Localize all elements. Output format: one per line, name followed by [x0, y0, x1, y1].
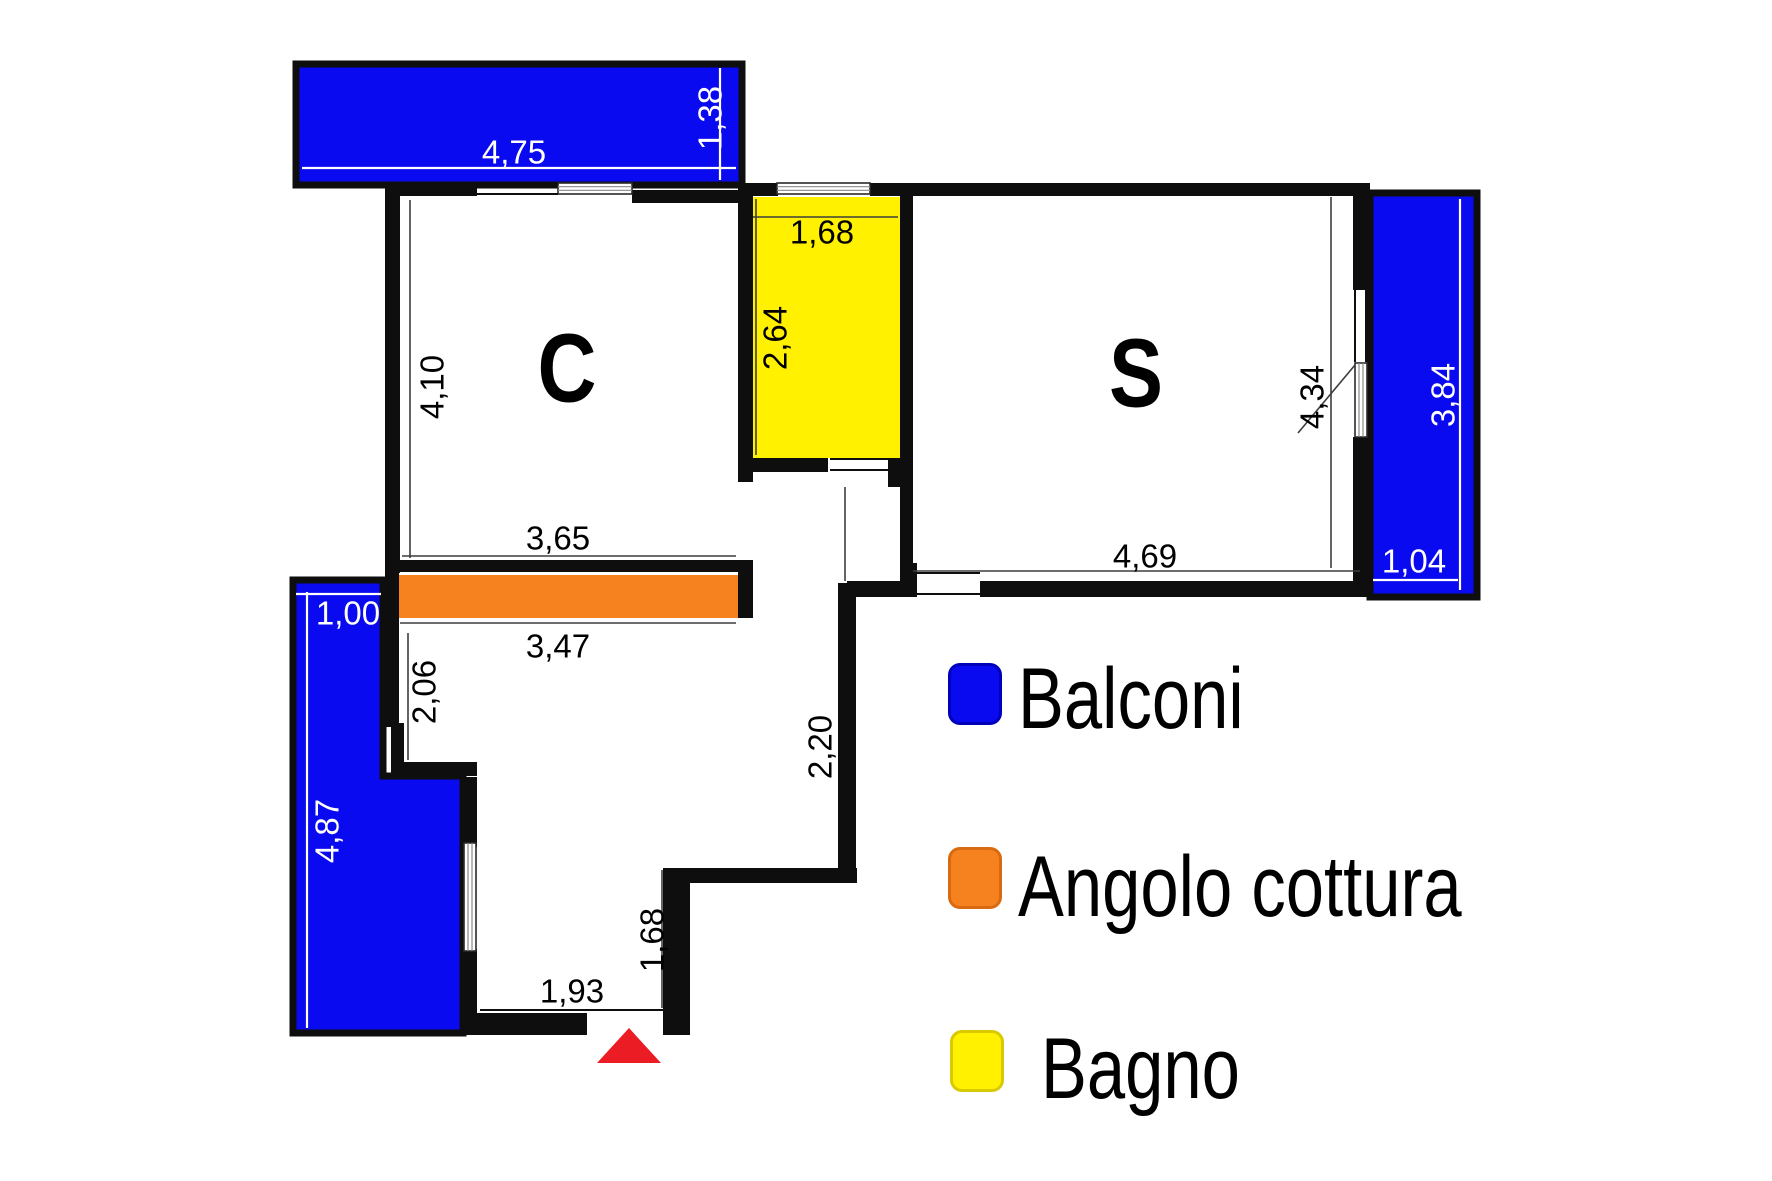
wall-segment	[738, 458, 828, 472]
wall-segment	[750, 183, 778, 196]
wall-segment	[385, 572, 399, 727]
dimension-label: 4,10	[414, 355, 451, 419]
legend-swatch-bagno	[950, 1030, 1004, 1092]
wall-segment	[632, 190, 750, 203]
legend-label-angolo-cottura: Angolo cottura	[1018, 844, 1462, 930]
dimension-label: 1,68	[634, 908, 671, 972]
room-s-label: S	[1109, 319, 1163, 428]
window-bagno-top	[777, 183, 870, 194]
wall-segment	[1353, 183, 1367, 290]
dimension-label: 1,00	[316, 595, 380, 632]
wall-segment	[738, 560, 753, 618]
dimension-label: 2,64	[757, 306, 794, 370]
wall-segment	[463, 777, 477, 847]
wall-segment	[463, 949, 477, 1015]
wall-segment	[882, 183, 1370, 196]
wall-segment	[847, 581, 917, 597]
dimension-label: 1,04	[1382, 543, 1446, 580]
dimension-label: 1,38	[692, 86, 729, 150]
floorplan-svg: 4,751,384,101,682,644,343,841,043,654,69…	[0, 0, 1772, 1181]
window-hall-left	[464, 843, 476, 951]
angolo-cottura-counter	[398, 575, 738, 618]
wall-segment	[398, 560, 740, 572]
legend-swatch-angolo-cottura	[948, 847, 1002, 909]
window-c-top	[558, 183, 632, 194]
wall-segment	[391, 762, 477, 776]
legend-label-balconi: Balconi	[1018, 656, 1244, 742]
wall-segment	[738, 183, 753, 482]
dimension-label: 3,65	[526, 520, 590, 557]
dimension-label: 3,84	[1425, 363, 1462, 427]
wall-segment	[980, 581, 1365, 597]
wall-segment	[900, 183, 913, 573]
dimension-label: 1,68	[790, 214, 854, 251]
window-s-right	[1355, 363, 1367, 437]
dimension-label: 3,47	[526, 628, 590, 665]
wall-segment	[463, 1013, 587, 1035]
entrance-arrow	[597, 1028, 661, 1063]
dimension-label: 2,06	[406, 660, 443, 724]
dimension-label: 1,93	[540, 973, 604, 1010]
wall-segment	[663, 868, 857, 883]
dimension-label: 4,69	[1113, 538, 1177, 575]
legend-label-bagno: Bagno	[1041, 1026, 1240, 1112]
dimension-label: 4,34	[1294, 365, 1331, 429]
wall-segment	[391, 723, 404, 766]
dimension-label: 4,87	[309, 799, 346, 863]
room-c-label: C	[538, 314, 597, 423]
dimension-label: 2,20	[802, 715, 839, 779]
dimension-label: 4,75	[482, 134, 546, 171]
floorplan-canvas: 4,751,384,101,682,644,343,841,043,654,69…	[0, 0, 1772, 1181]
wall-segment	[1353, 437, 1367, 597]
wall-segment	[385, 183, 400, 573]
legend-swatch-balconi	[948, 663, 1002, 725]
wall-segment	[838, 583, 856, 883]
